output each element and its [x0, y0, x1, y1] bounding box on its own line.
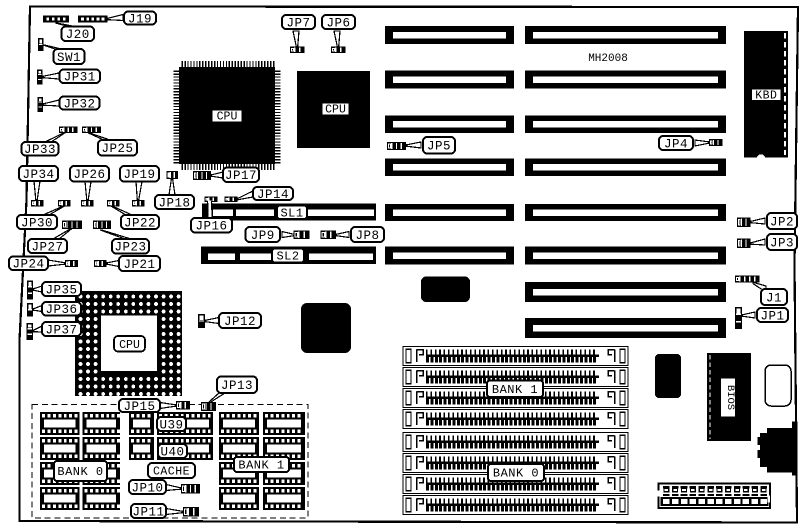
svg-text:SL2: SL2 — [276, 250, 299, 264]
svg-text:JP18: JP18 — [158, 196, 190, 210]
svg-text:JP16: JP16 — [195, 220, 227, 234]
svg-text:JP15: JP15 — [123, 400, 155, 414]
svg-text:JP36: JP36 — [45, 303, 77, 317]
svg-text:KBD: KBD — [755, 90, 777, 103]
svg-text:JP5: JP5 — [427, 140, 451, 154]
svg-text:J19: J19 — [128, 12, 152, 26]
svg-text:JP2: JP2 — [770, 215, 794, 229]
svg-text:JP13: JP13 — [221, 379, 253, 393]
svg-text:JP26: JP26 — [73, 168, 105, 182]
svg-text:JP37: JP37 — [45, 323, 77, 337]
svg-text:JP11: JP11 — [132, 505, 164, 519]
svg-text:JP27: JP27 — [31, 240, 63, 254]
svg-text:BANK 0: BANK 0 — [493, 467, 539, 481]
svg-text:JP3: JP3 — [770, 236, 794, 250]
svg-text:J20: J20 — [66, 28, 90, 42]
svg-text:BANK 0: BANK 0 — [57, 465, 103, 479]
svg-text:JP7: JP7 — [286, 16, 310, 30]
svg-text:JP24: JP24 — [12, 258, 44, 272]
svg-text:CPU: CPU — [217, 110, 238, 123]
svg-text:JP17: JP17 — [225, 169, 257, 183]
svg-text:BANK 1: BANK 1 — [492, 383, 538, 397]
svg-text:CPU: CPU — [325, 103, 346, 116]
svg-text:JP6: JP6 — [326, 16, 350, 30]
svg-text:JP30: JP30 — [21, 216, 53, 230]
svg-text:BANK 1: BANK 1 — [238, 459, 284, 473]
svg-text:JP34: JP34 — [22, 168, 54, 182]
svg-text:SL1: SL1 — [280, 206, 303, 220]
svg-text:JP25: JP25 — [101, 142, 133, 156]
svg-text:JP14: JP14 — [257, 188, 289, 202]
svg-text:JP21: JP21 — [123, 258, 155, 272]
svg-text:U40: U40 — [160, 445, 184, 459]
svg-text:JP12: JP12 — [224, 315, 256, 329]
svg-text:BIOS: BIOS — [724, 385, 736, 410]
svg-text:JP9: JP9 — [251, 229, 275, 243]
svg-text:JP10: JP10 — [131, 481, 163, 495]
svg-text:CPU: CPU — [119, 339, 140, 352]
svg-text:JP32: JP32 — [63, 97, 95, 111]
svg-text:JP1: JP1 — [760, 309, 784, 323]
svg-text:JP33: JP33 — [24, 143, 56, 157]
svg-text:JP8: JP8 — [355, 229, 379, 243]
svg-text:U39: U39 — [159, 418, 183, 432]
svg-text:MH2008: MH2008 — [588, 53, 628, 65]
svg-text:J1: J1 — [766, 291, 782, 305]
svg-text:CACHE: CACHE — [153, 465, 190, 478]
svg-text:JP35: JP35 — [45, 283, 77, 297]
svg-text:JP4: JP4 — [664, 137, 688, 151]
svg-text:JP23: JP23 — [114, 241, 146, 255]
svg-text:JP19: JP19 — [123, 168, 155, 182]
svg-text:SW1: SW1 — [57, 51, 81, 65]
svg-text:JP31: JP31 — [64, 71, 96, 85]
svg-text:JP22: JP22 — [124, 216, 156, 230]
